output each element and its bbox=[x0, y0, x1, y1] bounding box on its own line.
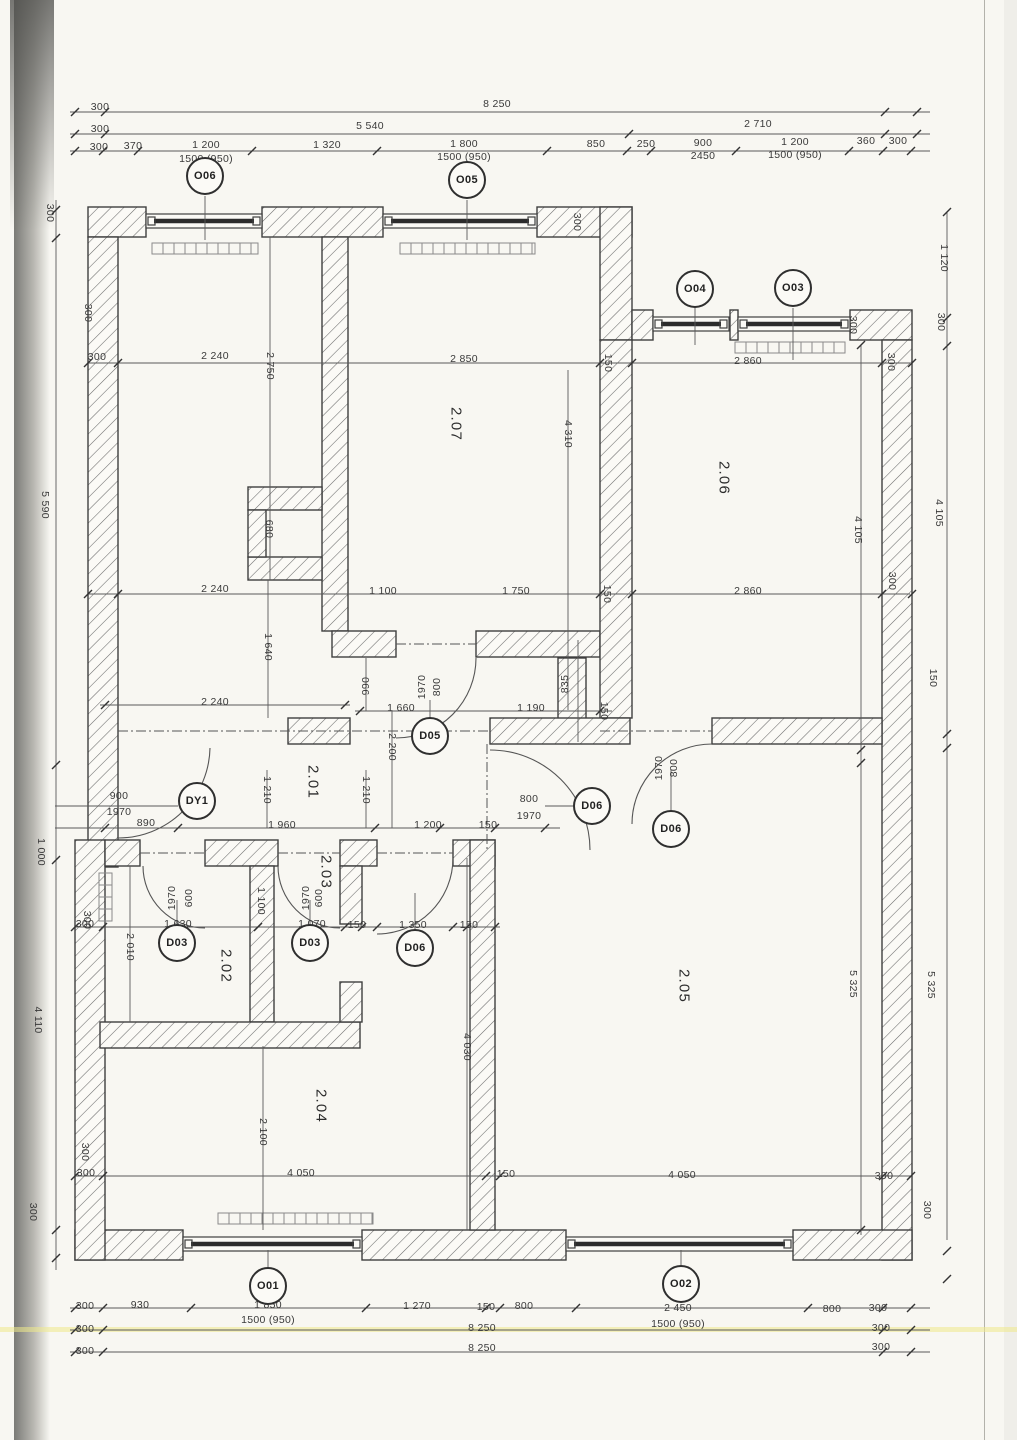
dimension-label: 4 030 bbox=[461, 1033, 473, 1061]
dimension-label: 300 bbox=[869, 1302, 887, 1314]
dimension-label: 300 bbox=[875, 1170, 893, 1182]
dimension-label: 250 bbox=[637, 138, 655, 150]
dimension-label: 1 800 bbox=[450, 138, 478, 150]
dimension-label: 300 bbox=[90, 141, 108, 153]
dimension-label: 4 050 bbox=[287, 1167, 315, 1179]
dimension-label: 1 210 bbox=[360, 776, 372, 804]
dimension-label: 890 bbox=[137, 817, 155, 829]
room-number-label: 2.06 bbox=[716, 461, 733, 495]
dimension-label: 800 bbox=[515, 1300, 533, 1312]
dimension-label: 300 bbox=[76, 1345, 94, 1357]
dimension-label: 4 110 bbox=[32, 1007, 44, 1034]
dimension-label: 1970 bbox=[416, 675, 428, 700]
dimension-label: 1500 (950) bbox=[241, 1314, 295, 1326]
dimension-label: 4 105 bbox=[852, 516, 864, 544]
door-tag-d05: D05 bbox=[411, 717, 449, 755]
dimension-label: 2 100 bbox=[257, 1118, 269, 1146]
dimension-label: 4 105 bbox=[933, 499, 945, 527]
dimension-label: 150 bbox=[477, 1301, 495, 1313]
dimension-label: 1970 bbox=[300, 886, 312, 911]
dimension-label: 1 100 bbox=[369, 585, 397, 597]
dimension-label: 2 860 bbox=[734, 585, 762, 597]
dimension-label: 150 bbox=[460, 919, 478, 931]
dimension-label: 150 bbox=[601, 585, 613, 603]
dimension-label: 2 010 bbox=[124, 933, 136, 961]
dimension-label: 1500 (950) bbox=[768, 149, 822, 161]
dimension-label: 8 250 bbox=[468, 1322, 496, 1334]
dimension-label: 300 bbox=[889, 135, 907, 147]
dimension-label: 300 bbox=[77, 1167, 95, 1179]
dimension-label: 1 750 bbox=[502, 585, 530, 597]
dimension-label: 5 590 bbox=[39, 491, 51, 519]
dimension-label: 5 325 bbox=[925, 971, 937, 999]
dimension-label: 2 860 bbox=[734, 355, 762, 367]
dimension-label: 1 200 bbox=[414, 819, 442, 831]
dimension-label: 1970 bbox=[107, 806, 132, 818]
dimension-label: 1 210 bbox=[261, 776, 273, 804]
dimension-label: 2 240 bbox=[201, 350, 229, 362]
dimension-label: 2 710 bbox=[744, 118, 772, 130]
dimension-label: 300 bbox=[79, 1143, 91, 1161]
dimension-label: 2 200 bbox=[386, 733, 398, 761]
dimension-label: 8 250 bbox=[483, 98, 511, 110]
dimension-label: 1 660 bbox=[387, 702, 415, 714]
dimension-label: 1 270 bbox=[403, 1300, 431, 1312]
door-tag-d06: D06 bbox=[573, 787, 611, 825]
dimension-label: 300 bbox=[27, 1203, 39, 1221]
dimension-label: 300 bbox=[81, 911, 93, 929]
dimension-label: 150 bbox=[602, 354, 614, 372]
floor-plan-canvas bbox=[0, 0, 1017, 1440]
room-number-label: 2.02 bbox=[218, 949, 235, 983]
room-number-label: 2.07 bbox=[448, 407, 465, 441]
window-tag-o02: O02 bbox=[662, 1265, 700, 1303]
dimension-label: 300 bbox=[91, 123, 109, 135]
dimension-label: 8 250 bbox=[468, 1342, 496, 1354]
dimension-label: 2 450 bbox=[664, 1302, 692, 1314]
dimension-label: 150 bbox=[497, 1168, 515, 1180]
dimension-label: 2 750 bbox=[264, 352, 276, 380]
dimension-label: 930 bbox=[131, 1299, 149, 1311]
dimension-label: 900 bbox=[110, 790, 128, 802]
door-tag-d03: D03 bbox=[158, 924, 196, 962]
scanned-floor-plan-sheet: 3008 2503005 5402 7103003701 2001 3201 8… bbox=[0, 0, 1017, 1440]
dimension-label: 300 bbox=[935, 313, 947, 331]
dimension-label: 300 bbox=[921, 1201, 933, 1219]
door-tag-dy1: DY1 bbox=[178, 782, 216, 820]
dimension-label: 1 320 bbox=[313, 139, 341, 151]
dimension-label: 2 850 bbox=[450, 353, 478, 365]
window-tag-o05: O05 bbox=[448, 161, 486, 199]
window-tag-o06: O06 bbox=[186, 157, 224, 195]
dimension-label: 1 960 bbox=[268, 819, 296, 831]
dimension-label: 300 bbox=[76, 1300, 94, 1312]
dimension-label: 150 bbox=[598, 702, 610, 720]
room-number-label: 2.01 bbox=[305, 765, 322, 799]
dimension-label: 850 bbox=[587, 138, 605, 150]
dimension-label: 2 240 bbox=[201, 583, 229, 595]
dimension-label: 300 bbox=[88, 351, 106, 363]
dimension-label: 300 bbox=[76, 1323, 94, 1335]
window-tag-o03: O03 bbox=[774, 269, 812, 307]
dimension-label: 300 bbox=[872, 1322, 890, 1334]
dimension-label: 2450 bbox=[691, 150, 716, 162]
dimension-label: 150 bbox=[479, 819, 497, 831]
dimension-label: 1 640 bbox=[262, 633, 274, 661]
dimension-label: 1 120 bbox=[938, 244, 950, 272]
dimension-label: 300 bbox=[885, 353, 897, 371]
dimension-label: 300 bbox=[872, 1341, 890, 1353]
dimension-label: 800 bbox=[431, 678, 443, 696]
dimension-label: 300 bbox=[91, 101, 109, 113]
dimension-label: 300 bbox=[847, 316, 859, 334]
dimension-label: 300 bbox=[44, 204, 56, 222]
door-tag-d06: D06 bbox=[652, 810, 690, 848]
dimension-label: 800 bbox=[520, 793, 538, 805]
dimension-label: 370 bbox=[124, 140, 142, 152]
dimension-label: 1 200 bbox=[192, 139, 220, 151]
door-tag-d03: D03 bbox=[291, 924, 329, 962]
dimension-label: 300 bbox=[571, 213, 583, 231]
dimension-label: 1 200 bbox=[781, 136, 809, 148]
dimension-label: 680 bbox=[263, 520, 275, 538]
dimension-label: 1970 bbox=[517, 810, 542, 822]
room-number-label: 2.04 bbox=[313, 1089, 330, 1123]
dimension-label: 360 bbox=[857, 135, 875, 147]
dimension-label: 300 bbox=[82, 304, 94, 322]
dimension-label: 800 bbox=[823, 1303, 841, 1315]
dimension-label: 990 bbox=[360, 677, 372, 695]
door-tag-d06: D06 bbox=[396, 929, 434, 967]
dimension-label: 5 540 bbox=[356, 120, 384, 132]
dimension-label: 900 bbox=[694, 137, 712, 149]
room-number-label: 2.05 bbox=[676, 969, 693, 1003]
dimension-label: 1 190 bbox=[517, 702, 545, 714]
dimension-label: 150 bbox=[927, 669, 939, 687]
dimension-label: 4 050 bbox=[668, 1169, 696, 1181]
dimension-label: 1 000 bbox=[35, 838, 47, 866]
dimension-label: 1500 (950) bbox=[651, 1318, 705, 1330]
dimension-label: 800 bbox=[668, 759, 680, 777]
dimension-label: 1970 bbox=[653, 756, 665, 781]
dimension-label: 5 325 bbox=[847, 970, 859, 998]
dimension-label: 600 bbox=[313, 889, 325, 907]
dimension-label: 4 310 bbox=[562, 420, 574, 448]
window-tag-o01: O01 bbox=[249, 1267, 287, 1305]
dimension-label: 300 bbox=[886, 572, 898, 590]
dimension-label: 150 bbox=[348, 919, 366, 931]
dimension-label: 1 100 bbox=[255, 887, 267, 915]
walls bbox=[75, 207, 912, 1260]
dimension-label: 2 240 bbox=[201, 696, 229, 708]
dimension-label: 835 bbox=[559, 675, 571, 693]
room-number-label: 2.03 bbox=[318, 855, 335, 889]
window-tag-o04: O04 bbox=[676, 270, 714, 308]
dimension-label: 1970 bbox=[166, 886, 178, 911]
dimension-label: 600 bbox=[183, 889, 195, 907]
